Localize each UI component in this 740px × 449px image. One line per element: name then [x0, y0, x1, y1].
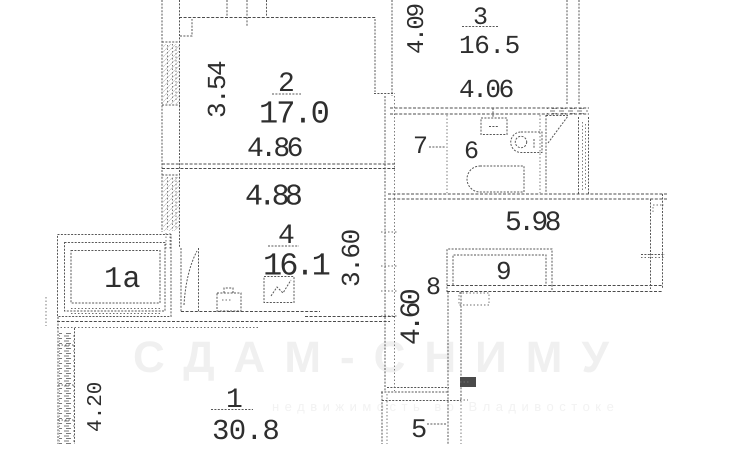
svg-text:7: 7	[413, 132, 428, 161]
svg-text:4.60: 4.60	[397, 289, 428, 345]
svg-text:4.06: 4.06	[459, 75, 513, 105]
svg-text:СДАМ-СНИМУ: СДАМ-СНИМУ	[133, 333, 628, 382]
svg-text:3: 3	[473, 3, 488, 32]
svg-text:4.09: 4.09	[404, 4, 431, 54]
svg-text:4.88: 4.88	[245, 181, 302, 215]
svg-text:16.5: 16.5	[459, 31, 520, 61]
svg-text:4.86: 4.86	[247, 134, 302, 165]
svg-text:5.98: 5.98	[505, 208, 560, 239]
svg-text:9: 9	[496, 257, 512, 287]
svg-text:5: 5	[411, 416, 427, 444]
svg-text:4.20: 4.20	[85, 382, 108, 432]
svg-text:3.60: 3.60	[337, 230, 367, 287]
svg-text:16.1: 16.1	[263, 248, 330, 285]
svg-text:6: 6	[464, 137, 479, 166]
svg-text:1: 1	[226, 385, 243, 416]
svg-text:30.8: 30.8	[212, 415, 279, 444]
svg-text:3.54: 3.54	[203, 61, 233, 118]
svg-text:недвижимость во Владивостоке: недвижимость во Владивостоке	[272, 399, 619, 414]
svg-text:1a: 1a	[104, 263, 141, 297]
svg-text:8: 8	[426, 273, 441, 302]
svg-text:17.0: 17.0	[259, 96, 329, 133]
